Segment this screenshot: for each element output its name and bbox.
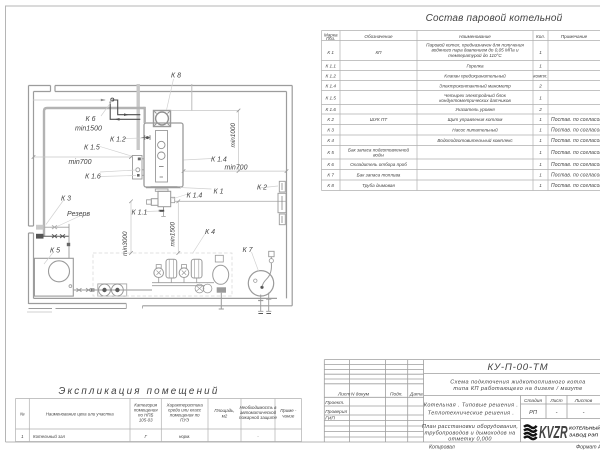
svg-text:трубопроводов и дымоходов на: трубопроводов и дымоходов на (425, 431, 516, 437)
svg-text:Кол.: Кол. (536, 34, 545, 39)
svg-text:min1500: min1500 (75, 126, 102, 133)
svg-text:min1500: min1500 (169, 222, 176, 247)
svg-text:К 6: К 6 (327, 162, 334, 167)
svg-text:1: 1 (539, 162, 542, 167)
svg-text:min700: min700 (69, 159, 92, 166)
svg-text:Лист: Лист (549, 398, 562, 404)
svg-text:Постав. по согласов: Постав. по согласов (551, 173, 600, 179)
svg-text:1: 1 (539, 50, 542, 55)
svg-text:Экспликация помещений: Экспликация помещений (59, 386, 220, 397)
svg-text:1: 1 (539, 96, 542, 101)
svg-text:воды: воды (373, 153, 384, 158)
svg-text:Примечание: Примечание (561, 34, 588, 39)
svg-text:ПУЭ: ПУЭ (180, 418, 189, 423)
svg-text:№: № (20, 412, 25, 417)
svg-text:N докум: N докум (351, 392, 370, 398)
svg-text:водяного пара давлением до 0,0: водяного пара давлением до 0,05 МПа и (431, 48, 519, 53)
svg-text:Листов: Листов (574, 398, 593, 404)
svg-text:Указатель уровня: Указатель уровня (455, 107, 495, 112)
svg-text:min1000: min1000 (230, 123, 237, 148)
svg-text:1: 1 (539, 128, 542, 133)
svg-text:К 4: К 4 (327, 138, 334, 143)
svg-text:1: 1 (539, 117, 542, 122)
svg-text:-: - (556, 410, 558, 416)
svg-text:К 1.4: К 1.4 (211, 157, 227, 164)
svg-text:Бак запаса топлива: Бак запаса топлива (357, 173, 401, 178)
svg-text:2: 2 (538, 84, 542, 89)
svg-text:Постав. по согласов: Постав. по согласов (551, 150, 600, 156)
svg-text:К 1.4: К 1.4 (187, 193, 203, 200)
svg-text:К 2: К 2 (327, 117, 334, 122)
svg-text:К 1.5: К 1.5 (84, 145, 100, 152)
svg-text:min3000: min3000 (122, 231, 129, 256)
svg-text:К 1.1: К 1.1 (132, 210, 148, 217)
svg-text:отметку 0,000: отметку 0,000 (448, 437, 492, 443)
svg-text:К 5: К 5 (327, 150, 334, 155)
svg-text:К 1.5: К 1.5 (326, 96, 337, 101)
svg-text:К 1.4: К 1.4 (326, 84, 337, 89)
svg-text:Электроконтактный манометр: Электроконтактный манометр (439, 83, 511, 89)
svg-text:Состав паровой котельной: Состав паровой котельной (426, 13, 563, 24)
svg-text:КУ-П-00-ТМ: КУ-П-00-ТМ (488, 362, 549, 373)
svg-text:Насос питательный: Насос питательный (452, 127, 498, 133)
svg-text:кондуктометрических датчиков: кондуктометрических датчиков (439, 98, 511, 103)
svg-text:К 7: К 7 (327, 173, 334, 178)
svg-text:Приме -: Приме - (280, 408, 297, 413)
svg-text:Котельный зал: Котельный зал (33, 434, 65, 439)
svg-text:РП: РП (529, 410, 538, 416)
svg-text:Четырех электродный блок: Четырех электродный блок (444, 92, 507, 98)
svg-text:К 1.2: К 1.2 (326, 74, 337, 79)
svg-text:1: 1 (539, 64, 542, 69)
svg-text:норм.: норм. (179, 434, 190, 439)
svg-text:Дата: Дата (409, 392, 423, 398)
svg-text:К 1.6: К 1.6 (85, 174, 101, 181)
svg-text:Теплотехнические решения .: Теплотехнические решения . (428, 411, 515, 417)
svg-text:К 1.6: К 1.6 (326, 107, 337, 112)
svg-text:Водоподготовительный комплекс: Водоподготовительный комплекс (437, 137, 513, 143)
svg-text:К 1.1: К 1.1 (326, 64, 337, 69)
svg-text:К 3: К 3 (327, 128, 334, 133)
svg-text:Обозначение: Обозначение (364, 34, 393, 39)
svg-text:Котельная . Типовые решения .: Котельная . Типовые решения . (424, 402, 519, 408)
svg-text:ШУК ПТ: ШУК ПТ (370, 117, 388, 122)
svg-text:ГИП: ГИП (325, 416, 335, 422)
svg-text:Клапан предохранительный: Клапан предохранительный (444, 73, 506, 79)
svg-text:чание: чание (282, 414, 295, 419)
svg-text:Проект.: Проект. (325, 400, 344, 406)
svg-text:Постав. по согласов: Постав. по согласов (551, 162, 600, 168)
svg-text:Резерв: Резерв (67, 211, 90, 218)
svg-text:К 3: К 3 (61, 196, 71, 203)
svg-text:К 8: К 8 (327, 183, 334, 188)
svg-text:Стадия: Стадия (524, 398, 542, 404)
svg-text:Горелка: Горелка (466, 64, 484, 69)
svg-text:К 2: К 2 (257, 185, 267, 192)
svg-text:Схема подключения жидкотопливн: Схема подключения жидкотопливного котла (450, 379, 586, 385)
svg-text:105-03: 105-03 (139, 418, 153, 423)
svg-text:1: 1 (539, 173, 542, 178)
svg-text:К 5: К 5 (50, 248, 60, 255)
svg-text:Копировал: Копировал (429, 445, 455, 450)
svg-text:Бак запаса подготовленной: Бак запаса подготовленной (348, 146, 410, 152)
svg-text:Постав. по согласов: Постав. по согласов (551, 128, 600, 134)
svg-text:К 1: К 1 (214, 189, 224, 196)
svg-text:температурой до 110°С: температурой до 110°С (448, 52, 502, 58)
svg-text:К 1.2: К 1.2 (110, 137, 126, 144)
svg-text:ЗАВОД РЭП: ЗАВОД РЭП (569, 433, 598, 439)
svg-text:Постав. по согласов: Постав. по согласов (551, 117, 600, 123)
svg-text:-: - (583, 410, 585, 416)
svg-text:К 4: К 4 (205, 229, 215, 236)
svg-text:1: 1 (539, 138, 542, 143)
svg-text:Лист: Лист (337, 392, 350, 398)
svg-text:типа КП работающего на дизеле: типа КП работающего на дизеле / мазуте (453, 386, 582, 392)
svg-text:Щит управления котлом: Щит управления котлом (448, 117, 504, 122)
svg-text:KVZR: KVZR (539, 422, 568, 442)
svg-text:План расстановки оборудования,: План расстановки оборудования, (422, 424, 518, 430)
svg-text:Площадь,: Площадь, (214, 408, 234, 413)
svg-text:Наименование цеха или участка: Наименование цеха или участка (46, 412, 115, 417)
svg-text:Постав. по согласов: Постав. по согласов (551, 183, 600, 189)
svg-text:К 1: К 1 (327, 50, 334, 55)
svg-text:пожарной защите: пожарной защите (239, 415, 277, 420)
svg-text:Наименование: Наименование (459, 34, 491, 39)
svg-text:Формат А,: Формат А, (576, 445, 600, 450)
svg-text:К 7: К 7 (243, 247, 254, 254)
svg-text:компл.: компл. (533, 74, 547, 79)
svg-text:К 6: К 6 (86, 116, 96, 123)
svg-text:1: 1 (539, 150, 542, 155)
svg-text:м2: м2 (222, 414, 228, 419)
svg-text:2: 2 (538, 107, 542, 112)
svg-text:Труба дымовая: Труба дымовая (362, 183, 395, 188)
svg-text:min700: min700 (225, 165, 248, 172)
svg-text:1: 1 (539, 183, 542, 188)
svg-text:Постав. по согласов: Постав. по согласов (551, 138, 600, 144)
svg-text:Подп.: Подп. (390, 392, 403, 398)
svg-text:К 8: К 8 (171, 73, 181, 80)
svg-text:Паровой котел, предназначен дл: Паровой котел, предназначен для получени… (426, 41, 524, 47)
svg-text:Охладитель отбора проб: Охладитель отбора проб (350, 162, 407, 167)
svg-text:Поз.: Поз. (326, 36, 335, 41)
svg-text:Проверил: Проверил (325, 409, 347, 415)
svg-text:КП: КП (375, 50, 382, 55)
